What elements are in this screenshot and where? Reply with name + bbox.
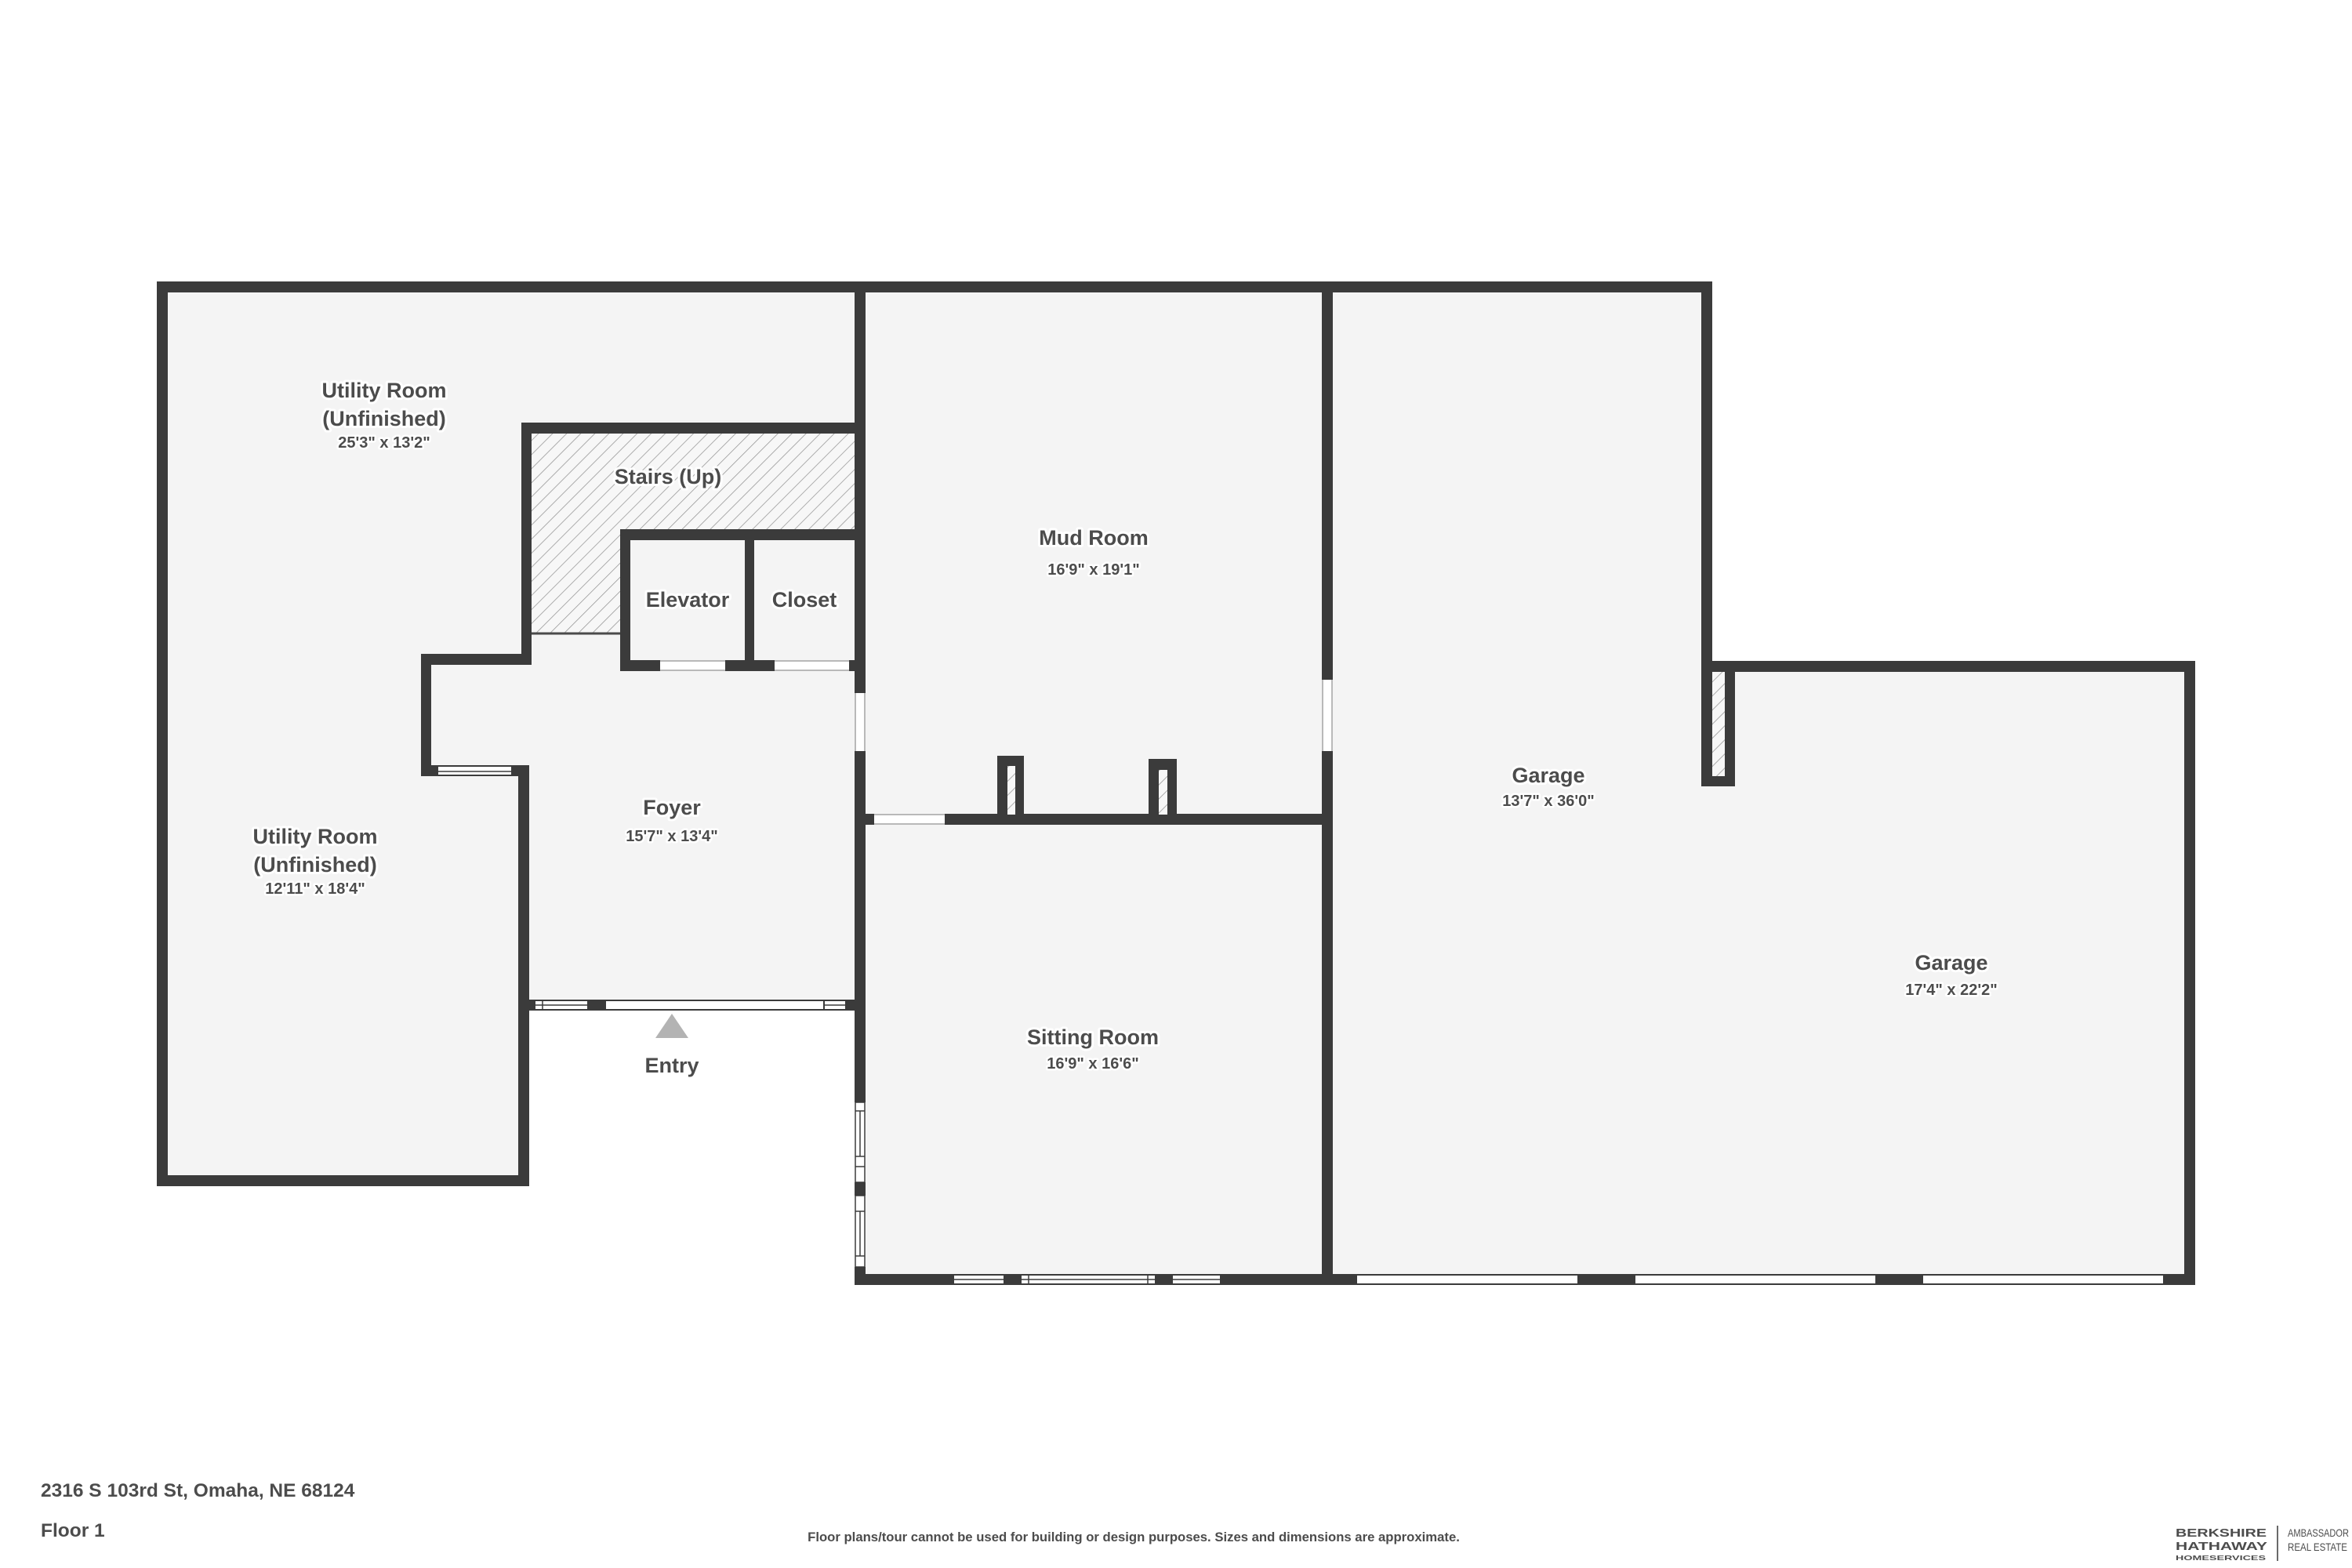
svg-text:Stairs (Up): Stairs (Up) — [615, 465, 722, 488]
svg-text:Elevator: Elevator — [646, 588, 730, 612]
svg-text:15'7" x 13'4": 15'7" x 13'4" — [626, 828, 717, 845]
svg-text:Foyer: Foyer — [643, 796, 701, 819]
svg-text:Floor plans/tour cannot be use: Floor plans/tour cannot be used for buil… — [808, 1530, 1460, 1544]
svg-text:HOMESERVICES: HOMESERVICES — [2176, 1554, 2267, 1562]
svg-text:17'4" x 22'2": 17'4" x 22'2" — [1905, 982, 1997, 999]
svg-text:(Unfinished): (Unfinished) — [322, 407, 445, 430]
svg-text:16'9" x 16'6": 16'9" x 16'6" — [1047, 1055, 1138, 1073]
svg-text:25'3" x 13'2": 25'3" x 13'2" — [338, 434, 430, 452]
svg-text:AMBASSADOR: AMBASSADOR — [2288, 1526, 2349, 1539]
svg-text:HATHAWAY: HATHAWAY — [2176, 1541, 2267, 1553]
svg-text:Garage: Garage — [1512, 764, 1584, 787]
svg-text:Entry: Entry — [644, 1054, 699, 1077]
svg-text:Closet: Closet — [772, 588, 837, 612]
svg-text:13'7" x 36'0": 13'7" x 36'0" — [1502, 793, 1594, 810]
svg-text:Utility Room: Utility Room — [322, 379, 447, 402]
svg-text:12'11" x 18'4": 12'11" x 18'4" — [265, 880, 365, 898]
svg-text:Mud Room: Mud Room — [1039, 526, 1148, 550]
svg-text:2316 S 103rd St, Omaha, NE 681: 2316 S 103rd St, Omaha, NE 68124 — [41, 1480, 355, 1501]
svg-text:Sitting Room: Sitting Room — [1027, 1025, 1159, 1049]
svg-text:Utility Room: Utility Room — [253, 825, 378, 848]
svg-text:Floor 1: Floor 1 — [41, 1520, 105, 1541]
svg-text:Garage: Garage — [1915, 951, 1987, 975]
svg-text:REAL ESTATE: REAL ESTATE — [2288, 1541, 2347, 1553]
svg-text:(Unfinished): (Unfinished) — [253, 853, 376, 877]
svg-text:16'9" x 19'1": 16'9" x 19'1" — [1047, 561, 1139, 579]
svg-text:BERKSHIRE: BERKSHIRE — [2176, 1527, 2267, 1540]
